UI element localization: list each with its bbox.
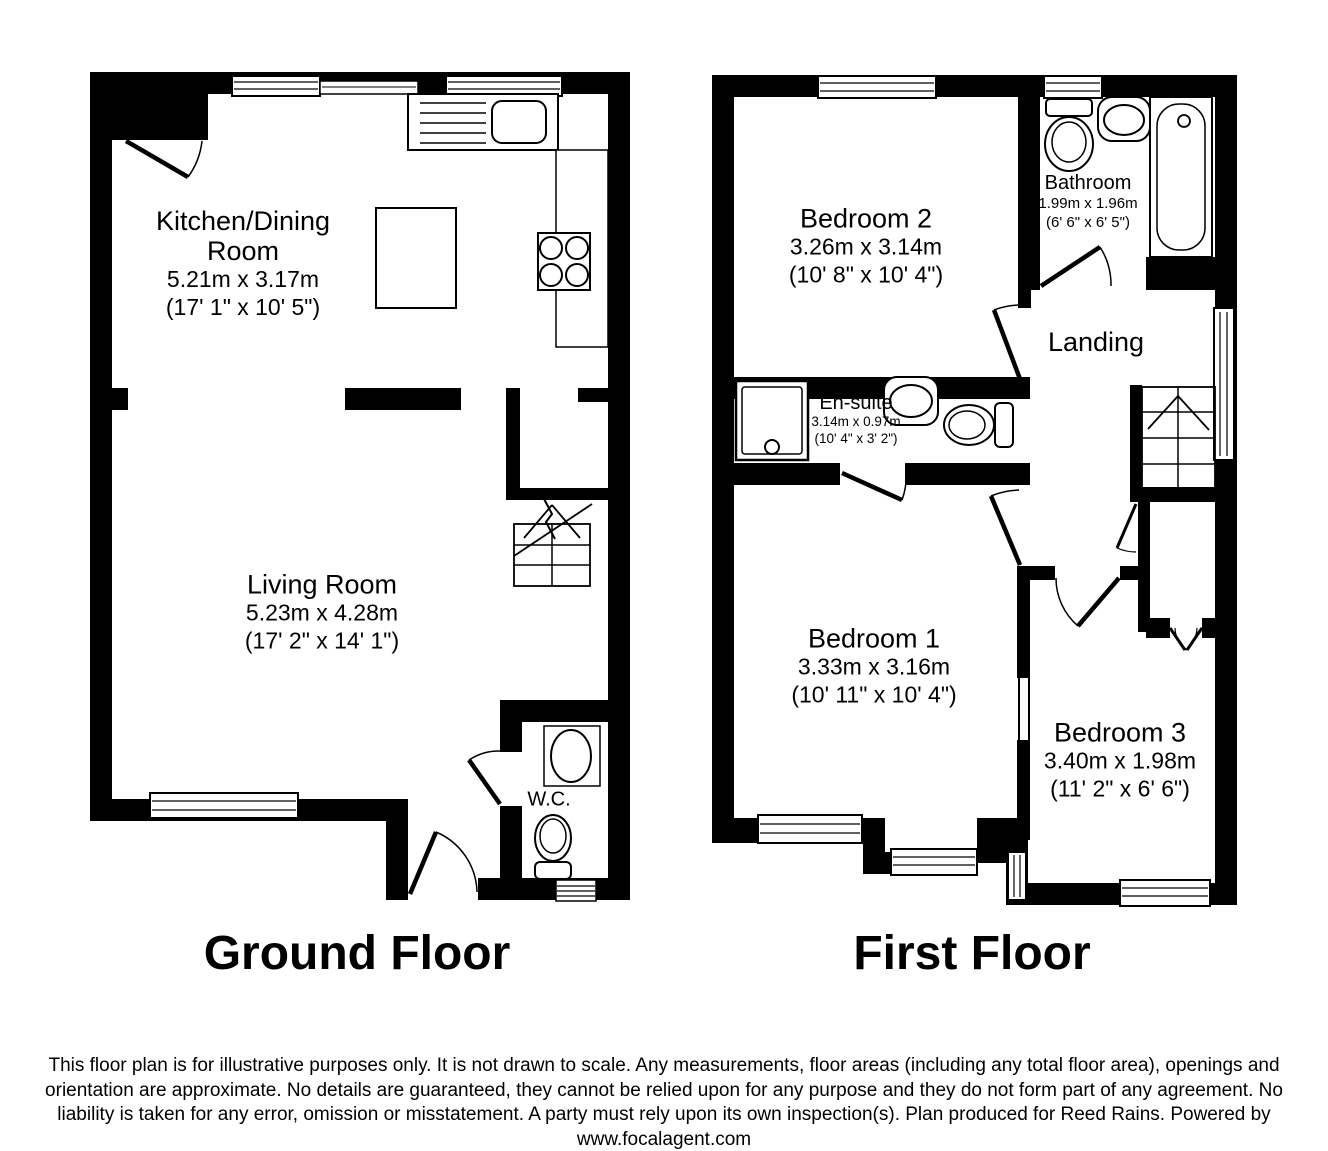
dining-table — [376, 208, 456, 308]
room-label-bedroom-1: Bedroom 1 3.33m x 3.16m (10' 11" x 10' 4… — [734, 623, 1014, 708]
front-door — [410, 832, 477, 894]
disclaimer-text: This floor plan is for illustrative purp… — [45, 1055, 1283, 1125]
bedroom2-window — [818, 76, 936, 98]
bedroom3-side-window — [1008, 852, 1026, 900]
wc-basin — [544, 726, 600, 786]
ground-floor-stairs — [514, 497, 592, 586]
ground-floor-plan — [90, 72, 630, 901]
room-imperial: (10' 11" x 10' 4") — [734, 681, 1014, 709]
kitchen-window-left — [232, 76, 320, 96]
room-label-living-room: Living Room 5.23m x 4.28m (17' 2" x 14' … — [172, 569, 472, 654]
room-label-landing: Landing — [1016, 327, 1176, 357]
bathroom-sink — [1098, 97, 1150, 141]
room-name: Bedroom 2 — [726, 203, 1006, 233]
room-metric: 5.21m x 3.17m — [118, 267, 368, 295]
kitchen-opening — [320, 81, 418, 94]
disclaimer-website: www.focalagent.com — [33, 1128, 1295, 1151]
room-metric: 1.99m x 1.96m — [1008, 195, 1168, 214]
ground-floor-title: Ground Floor — [204, 926, 511, 981]
room-name: Bedroom 3 — [1010, 717, 1230, 747]
room-label-wc: W.C. — [509, 789, 589, 812]
room-label-bedroom-2: Bedroom 2 3.26m x 3.14m (10' 8" x 10' 4"… — [726, 203, 1006, 288]
room-name: Bedroom 1 — [734, 623, 1014, 653]
room-label-kitchen-dining: Kitchen/Dining Room 5.21m x 3.17m (17' 1… — [118, 206, 368, 322]
bedroom3-window — [1120, 880, 1210, 906]
bedroom1-bay-window — [891, 849, 977, 875]
ensuite-door — [842, 473, 906, 500]
room-imperial: (11' 2" x 6' 6") — [1010, 775, 1230, 803]
floorplan-page: Kitchen/Dining Room 5.21m x 3.17m (17' 1… — [0, 0, 1328, 1151]
hob — [538, 233, 590, 290]
room-name: En-suite — [781, 392, 931, 414]
kitchen-fixtures — [376, 94, 608, 347]
bathroom-window — [1044, 76, 1102, 98]
room-name: W.C. — [509, 789, 589, 812]
wc-door — [469, 751, 500, 804]
bedroom3-door — [1056, 578, 1119, 626]
bathroom-toilet — [1045, 99, 1093, 171]
room-imperial: (10' 4" x 3' 2") — [781, 431, 931, 448]
room-imperial: (17' 2" x 14' 1") — [172, 627, 472, 655]
wc-toilet — [535, 815, 571, 879]
bedroom1-window — [758, 815, 862, 843]
first-floor-stairs — [1142, 387, 1215, 489]
disclaimer: This floor plan is for illustrative purp… — [33, 1054, 1295, 1151]
room-name: Landing — [1016, 327, 1176, 357]
cupboard-doors — [1170, 628, 1202, 650]
bedroom1-door — [991, 490, 1020, 565]
room-imperial: (10' 8" x 10' 4") — [726, 261, 1006, 289]
room-metric: 3.33m x 3.16m — [734, 654, 1014, 682]
room-metric: 3.14m x 0.97m — [781, 414, 931, 431]
room-metric: 5.23m x 4.28m — [172, 600, 472, 628]
first-floor-title: First Floor — [853, 926, 1090, 981]
room-metric: 3.40m x 1.98m — [1010, 748, 1230, 776]
kitchen-sink-unit — [408, 94, 558, 150]
living-room-window — [150, 793, 298, 818]
landing-stairs-door — [1117, 504, 1136, 552]
room-name: Bathroom — [1008, 172, 1168, 195]
kitchen-entry-door — [126, 141, 202, 177]
room-imperial: (6' 6" x 6' 5") — [1008, 214, 1168, 233]
ensuite-toilet — [944, 403, 1013, 447]
room-name: Living Room — [172, 569, 472, 599]
landing-window — [1214, 308, 1234, 460]
bathroom-door — [1041, 247, 1111, 286]
wc-vent-window — [556, 880, 596, 901]
room-label-bathroom: Bathroom 1.99m x 1.96m (6' 6" x 6' 5") — [1008, 172, 1168, 233]
room-label-bedroom-3: Bedroom 3 3.40m x 1.98m (11' 2" x 6' 6") — [1010, 717, 1230, 802]
room-imperial: (17' 1" x 10' 5") — [118, 294, 368, 322]
room-label-en-suite: En-suite 3.14m x 0.97m (10' 4" x 3' 2") — [781, 392, 931, 448]
room-metric: 3.26m x 3.14m — [726, 234, 1006, 262]
room-name: Kitchen/Dining Room — [118, 206, 368, 266]
